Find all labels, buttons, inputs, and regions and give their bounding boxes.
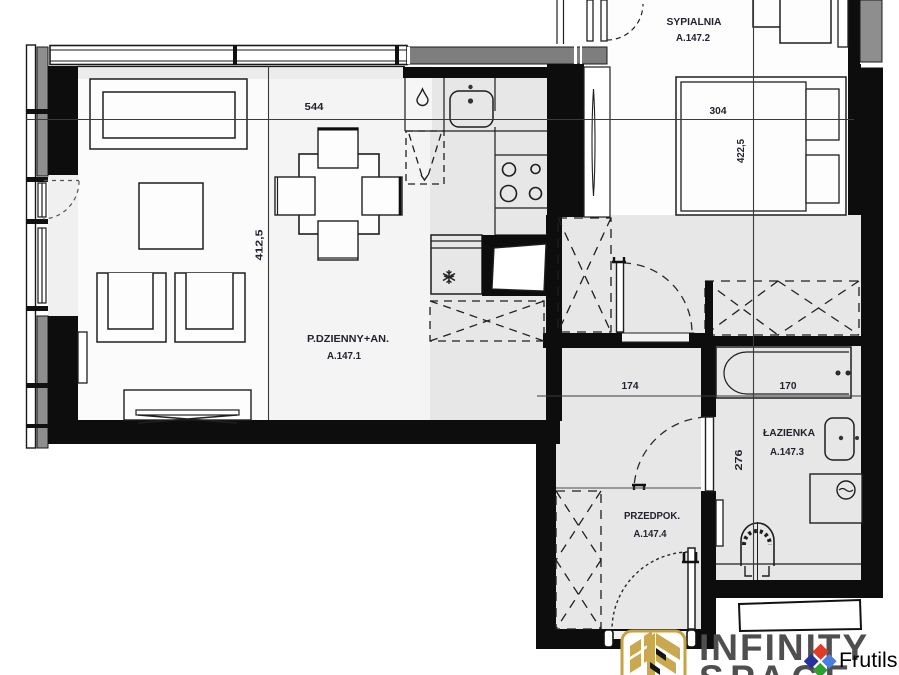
svg-text:276: 276 <box>734 449 745 471</box>
svg-text:ŁAZIENKA: ŁAZIENKA <box>763 428 816 439</box>
svg-text:A.147.1: A.147.1 <box>327 351 361 362</box>
svg-text:422,5: 422,5 <box>736 138 747 163</box>
svg-text:Frutils: Frutils <box>839 648 898 672</box>
svg-text:170: 170 <box>780 381 797 392</box>
svg-text:544: 544 <box>305 102 324 113</box>
svg-text:174: 174 <box>622 381 639 392</box>
svg-text:PRZEDPOK.: PRZEDPOK. <box>624 511 680 522</box>
svg-text:A.147.3: A.147.3 <box>770 447 804 458</box>
svg-text:A.147.2: A.147.2 <box>676 33 710 44</box>
svg-text:304: 304 <box>710 106 727 117</box>
svg-text:412,5: 412,5 <box>255 229 266 261</box>
svg-text:A.147.4: A.147.4 <box>634 529 667 540</box>
svg-text:SYPIALNIA: SYPIALNIA <box>667 17 723 28</box>
svg-text:P.DZIENNY+AN.: P.DZIENNY+AN. <box>307 334 389 345</box>
